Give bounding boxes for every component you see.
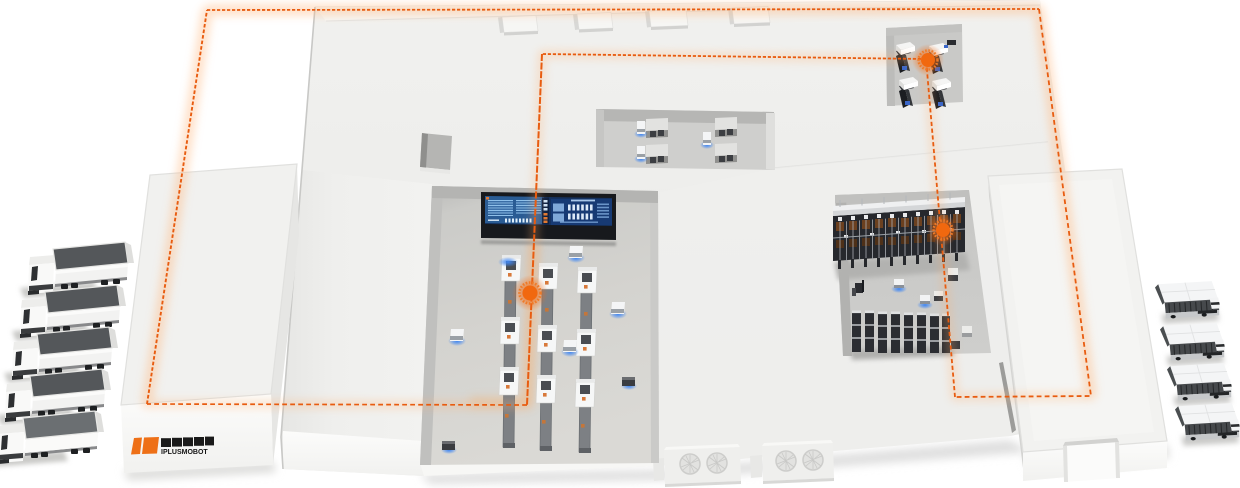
svg-text:IPLUSMOBOT: IPLUSMOBOT xyxy=(161,449,208,456)
